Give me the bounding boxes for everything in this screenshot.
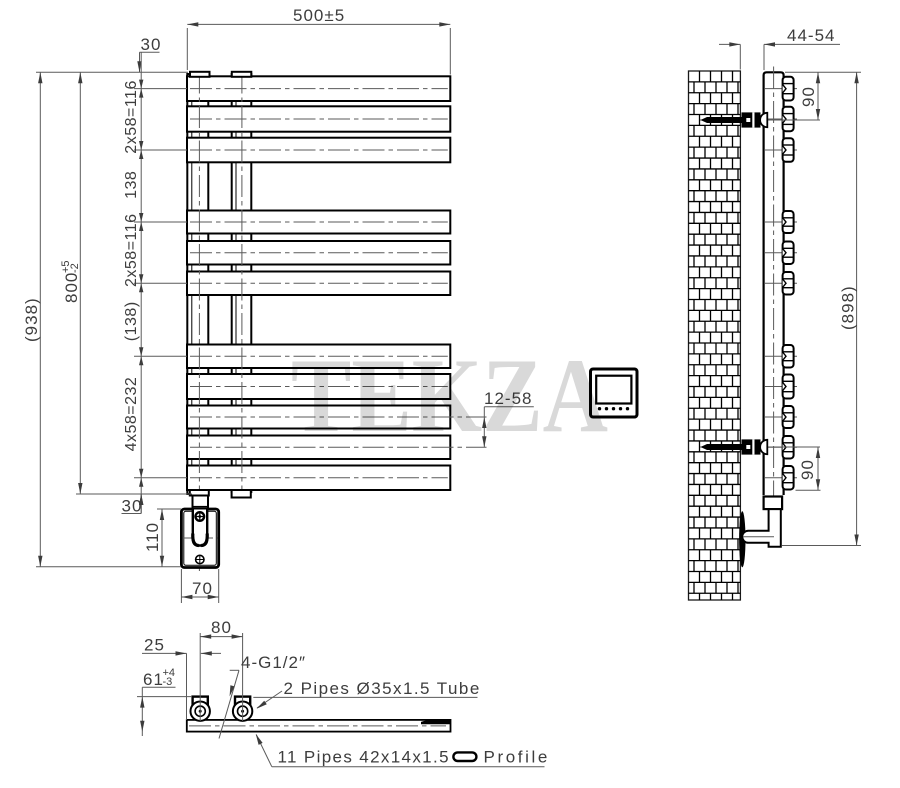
svg-text:2x58=116: 2x58=116 [123,213,140,287]
svg-text:4-G1/2″: 4-G1/2″ [241,653,306,672]
svg-text:61: 61 [143,670,164,689]
svg-text:-2: -2 [69,263,81,273]
svg-text:500±5: 500±5 [293,6,345,25]
svg-text:90: 90 [798,459,817,480]
svg-text:4x58=232: 4x58=232 [123,377,140,452]
svg-text:TEKZA: TEKZA [291,337,608,454]
svg-text:(138): (138) [123,301,140,341]
svg-text:2x58=116: 2x58=116 [123,80,140,154]
svg-text:90: 90 [799,86,818,107]
svg-text:138: 138 [123,171,140,199]
svg-text:Profile: Profile [484,748,550,767]
svg-text:25: 25 [144,636,165,655]
svg-text:2 Pipes Ø35x1.5 Tube: 2 Pipes Ø35x1.5 Tube [284,679,481,698]
svg-text:800: 800 [62,272,81,303]
svg-text:70: 70 [192,579,213,598]
svg-text:44-54: 44-54 [787,26,835,45]
svg-text:30: 30 [141,35,162,54]
svg-text:-3: -3 [163,676,173,688]
svg-text:(898): (898) [839,285,858,330]
svg-text:11 Pipes 42x14x1.5: 11 Pipes 42x14x1.5 [278,748,450,767]
svg-text:110: 110 [143,522,162,552]
svg-text:30: 30 [122,497,143,516]
svg-text:80: 80 [211,618,232,637]
svg-text:(938): (938) [22,297,41,342]
